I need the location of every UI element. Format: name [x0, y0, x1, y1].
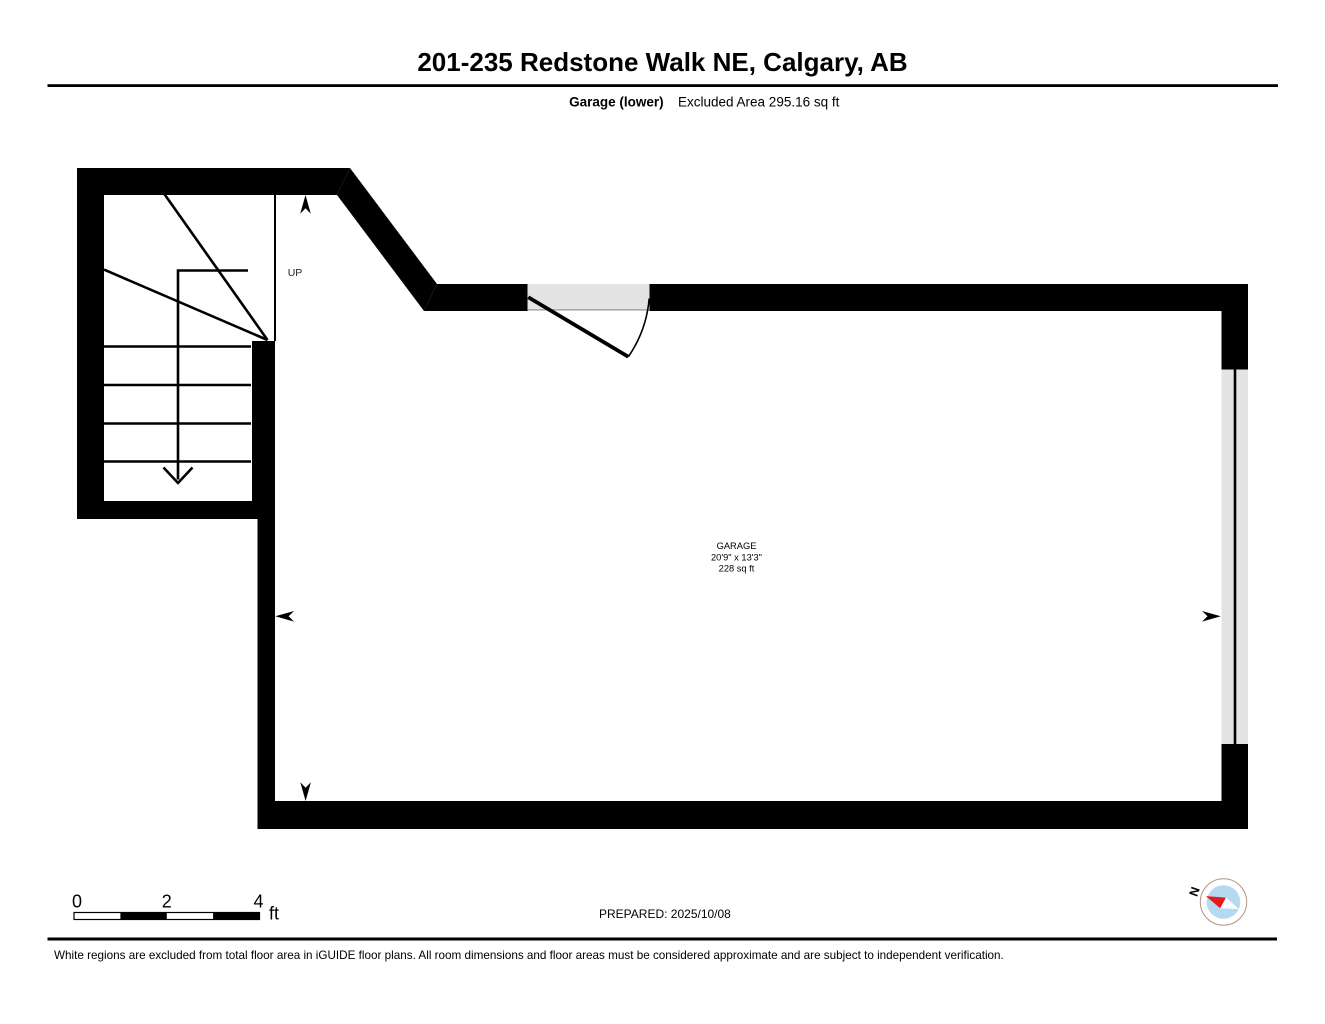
svg-text:UP: UP — [288, 267, 303, 279]
svg-text:GARAGE: GARAGE — [717, 541, 757, 551]
svg-text:White regions are excluded fro: White regions are excluded from total fl… — [54, 949, 1004, 962]
svg-text:Excluded Area 295.16 sq ft: Excluded Area 295.16 sq ft — [678, 95, 840, 110]
svg-text:4: 4 — [253, 892, 263, 912]
svg-text:PREPARED: 2025/10/08: PREPARED: 2025/10/08 — [599, 907, 731, 921]
svg-text:2: 2 — [162, 892, 172, 912]
svg-text:Garage (lower): Garage (lower) — [569, 95, 664, 110]
svg-text:201-235 Redstone Walk NE, Calg: 201-235 Redstone Walk NE, Calgary, AB — [417, 47, 907, 77]
svg-text:20'9" x 13'3": 20'9" x 13'3" — [711, 553, 762, 563]
svg-text:228 sq ft: 228 sq ft — [719, 564, 755, 574]
svg-text:ft: ft — [269, 904, 279, 924]
svg-text:0: 0 — [72, 892, 82, 912]
